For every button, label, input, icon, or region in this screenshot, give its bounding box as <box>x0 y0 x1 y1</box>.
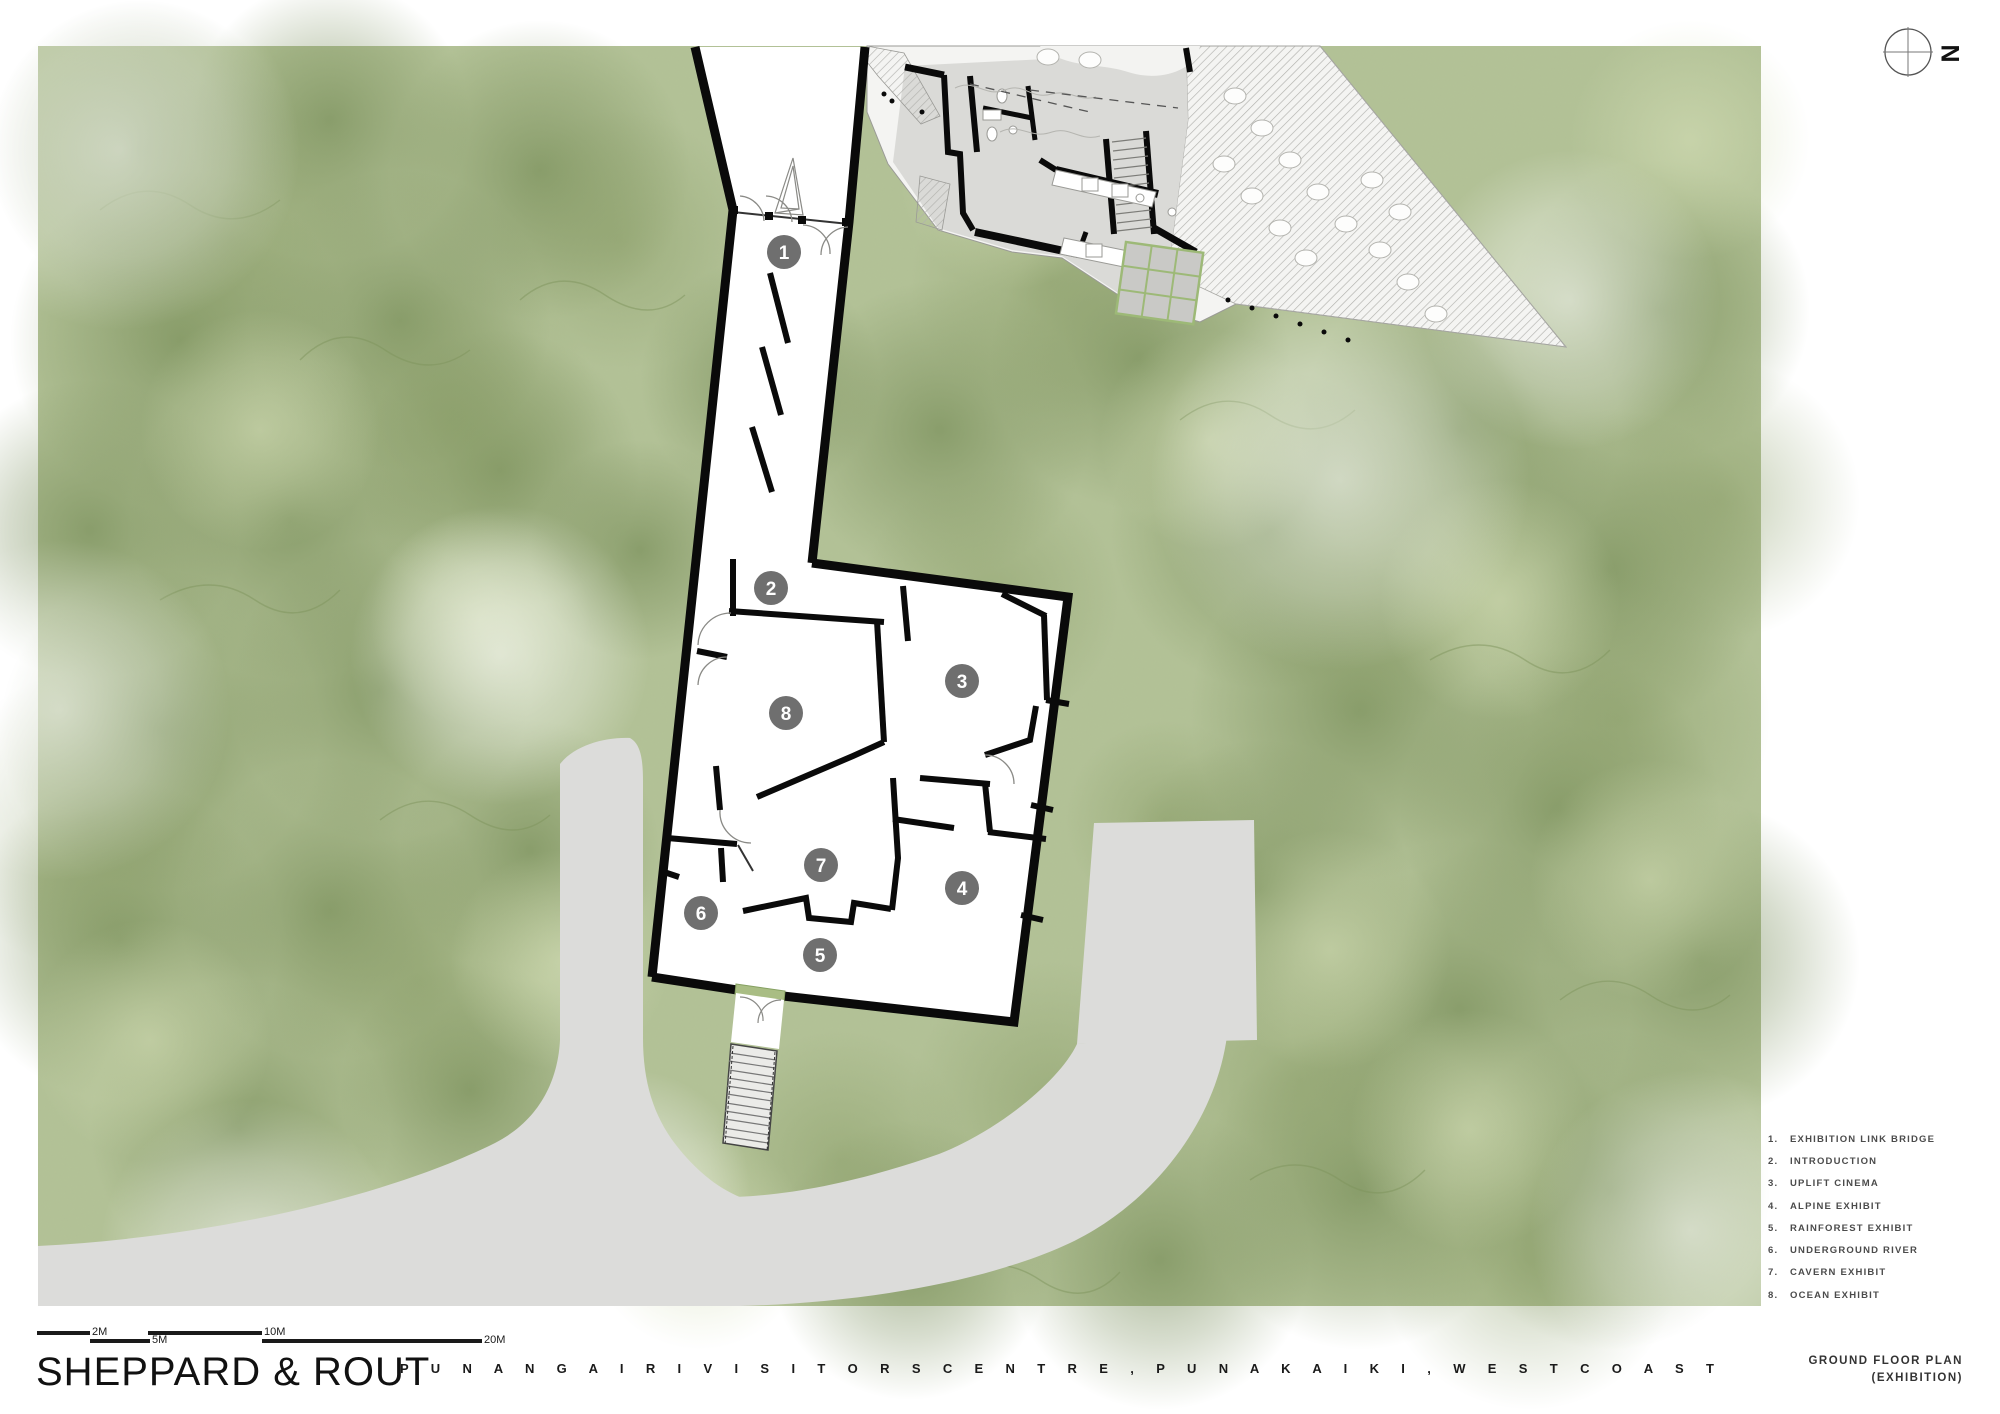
drawing-title: GROUND FLOOR PLAN (EXHIBITION) <box>1808 1353 1963 1387</box>
drawing-title-line1: GROUND FLOOR PLAN <box>1808 1353 1963 1370</box>
room-marker-1: 1 <box>767 235 801 269</box>
site-plan-drawing: 1 2 3 4 5 6 7 8 <box>0 0 2000 1414</box>
room-marker-5: 5 <box>803 938 837 972</box>
room-marker-2: 2 <box>754 571 788 605</box>
legend-item: 4.ALPINE EXHIBIT <box>1768 1195 1935 1217</box>
scale-label-5m: 5M <box>152 1334 167 1346</box>
room-legend: 1.EXHIBITION LINK BRIDGE 2.INTRODUCTION … <box>1768 1128 1935 1306</box>
svg-text:4: 4 <box>957 879 968 900</box>
legend-item: 7.CAVERN EXHIBIT <box>1768 1262 1935 1284</box>
legend-item: 5.RAINFOREST EXHIBIT <box>1768 1217 1935 1239</box>
room-marker-8: 8 <box>769 696 803 730</box>
scale-label-10m: 10M <box>264 1326 285 1338</box>
drawing-title-line2: (EXHIBITION) <box>1808 1370 1963 1387</box>
svg-text:2: 2 <box>766 579 777 600</box>
scale-segment <box>262 1339 482 1343</box>
canopy-grid <box>1116 242 1203 324</box>
scale-segment <box>37 1331 90 1335</box>
firm-name: SHEPPARD & ROUT <box>36 1350 430 1395</box>
scale-label-2m: 2M <box>92 1326 107 1338</box>
room-marker-7: 7 <box>804 848 838 882</box>
project-title: P U N A N G A I R I V I S I T O R S C E … <box>400 1361 1570 1376</box>
legend-item: 6.UNDERGROUND RIVER <box>1768 1239 1935 1261</box>
svg-text:1: 1 <box>779 243 790 264</box>
svg-text:7: 7 <box>816 856 827 877</box>
east-pad <box>1077 820 1257 1044</box>
plan-sheet: 1 2 3 4 5 6 7 8 N 1.EXHIBITION LINK BRID… <box>0 0 2000 1414</box>
scale-segment <box>148 1331 262 1335</box>
legend-item: 2.INTRODUCTION <box>1768 1150 1935 1172</box>
north-symbol: N <box>1882 26 1977 82</box>
legend-item: 3.UPLIFT CINEMA <box>1768 1173 1935 1195</box>
scale-label-20m: 20M <box>484 1334 505 1346</box>
room-marker-6: 6 <box>684 896 718 930</box>
svg-text:6: 6 <box>696 904 707 925</box>
legend-item: 8.OCEAN EXHIBIT <box>1768 1284 1935 1306</box>
scale-segment <box>90 1339 150 1343</box>
room-marker-3: 3 <box>945 664 979 698</box>
north-label: N <box>1935 44 1964 62</box>
svg-text:3: 3 <box>957 672 968 693</box>
svg-text:8: 8 <box>781 704 792 725</box>
legend-item: 1.EXHIBITION LINK BRIDGE <box>1768 1128 1935 1150</box>
room-marker-4: 4 <box>945 871 979 905</box>
svg-text:5: 5 <box>815 946 826 967</box>
